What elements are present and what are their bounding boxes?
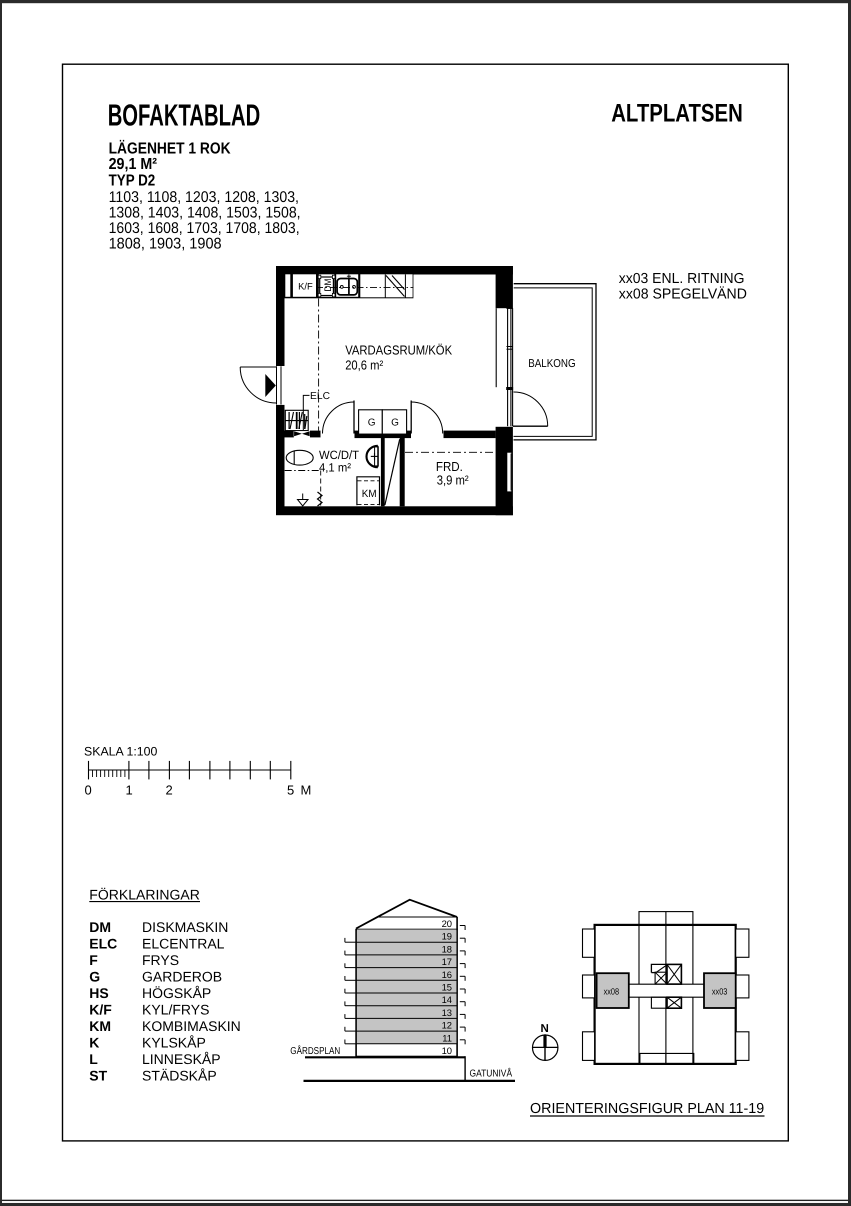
svg-text:xx03: xx03 xyxy=(712,986,728,996)
svg-text:L: L xyxy=(89,1051,98,1067)
svg-text:xx03 ENL. RITNING: xx03 ENL. RITNING xyxy=(619,271,745,287)
svg-text:K: K xyxy=(89,1035,99,1051)
svg-text:5: 5 xyxy=(287,782,294,797)
svg-text:BOFAKTABLAD: BOFAKTABLAD xyxy=(108,99,261,133)
svg-text:M: M xyxy=(301,782,312,797)
svg-text:15: 15 xyxy=(442,982,452,993)
svg-text:xx08: xx08 xyxy=(604,986,620,996)
svg-text:HÖGSKÅP: HÖGSKÅP xyxy=(142,985,211,1001)
svg-text:DM: DM xyxy=(89,919,111,935)
svg-text:GÅRDSPLAN: GÅRDSPLAN xyxy=(290,1045,340,1057)
svg-text:F: F xyxy=(89,952,98,968)
svg-text:HS: HS xyxy=(89,985,108,1001)
svg-text:1808, 1903, 1908: 1808, 1903, 1908 xyxy=(109,235,222,252)
svg-text:ELC: ELC xyxy=(89,936,117,952)
svg-text:29,1 M²: 29,1 M² xyxy=(109,156,157,173)
svg-text:KYL/FRYS: KYL/FRYS xyxy=(142,1002,209,1018)
svg-text:3,9 m²: 3,9 m² xyxy=(437,473,470,488)
svg-text:G: G xyxy=(368,418,376,429)
svg-text:LINNESKÅP: LINNESKÅP xyxy=(142,1051,221,1067)
svg-text:BALKONG: BALKONG xyxy=(528,358,575,370)
svg-text:G: G xyxy=(89,969,100,985)
svg-text:ORIENTERINGSFIGUR PLAN 11-19: ORIENTERINGSFIGUR PLAN 11-19 xyxy=(530,1101,764,1117)
svg-text:12: 12 xyxy=(442,1020,452,1031)
svg-text:2: 2 xyxy=(166,782,173,797)
svg-text:KM: KM xyxy=(362,488,377,500)
svg-text:KOMBIMASKIN: KOMBIMASKIN xyxy=(142,1018,241,1034)
svg-text:DM: DM xyxy=(323,278,334,291)
svg-text:1: 1 xyxy=(126,782,133,797)
svg-text:KM: KM xyxy=(89,1018,111,1034)
svg-text:16: 16 xyxy=(442,969,452,980)
svg-text:20,6 m²: 20,6 m² xyxy=(345,358,384,373)
svg-text:14: 14 xyxy=(442,994,452,1005)
svg-text:4,1 m²: 4,1 m² xyxy=(319,461,351,475)
svg-text:TYP D2: TYP D2 xyxy=(109,173,156,190)
svg-text:xx08 SPEGELVÄND: xx08 SPEGELVÄND xyxy=(619,286,747,303)
svg-text:K/F: K/F xyxy=(298,282,313,293)
svg-text:ELC: ELC xyxy=(310,391,330,402)
svg-text:LÄGENHET 1 ROK: LÄGENHET 1 ROK xyxy=(109,139,231,157)
svg-text:SKALA 1:100: SKALA 1:100 xyxy=(84,745,158,759)
svg-text:19: 19 xyxy=(442,931,452,942)
svg-text:DISKMASKIN: DISKMASKIN xyxy=(142,919,228,935)
svg-text:18: 18 xyxy=(442,943,452,954)
svg-text:N: N xyxy=(541,1023,549,1035)
svg-text:10: 10 xyxy=(442,1045,452,1056)
svg-text:ST: ST xyxy=(89,1068,107,1084)
svg-text:GARDEROB: GARDEROB xyxy=(142,969,222,985)
svg-text:20: 20 xyxy=(442,918,452,929)
svg-text:13: 13 xyxy=(442,1007,452,1018)
svg-text:KYLSKÅP: KYLSKÅP xyxy=(142,1035,206,1051)
svg-text:VARDAGSRUM/KÖK: VARDAGSRUM/KÖK xyxy=(345,343,452,358)
svg-text:FÖRKLARINGAR: FÖRKLARINGAR xyxy=(89,887,200,903)
svg-text:G: G xyxy=(391,418,399,429)
svg-text:11: 11 xyxy=(442,1032,452,1043)
svg-text:ELCENTRAL: ELCENTRAL xyxy=(142,936,225,952)
svg-text:0: 0 xyxy=(85,782,92,797)
svg-text:ALTPLATSEN: ALTPLATSEN xyxy=(611,100,743,128)
svg-text:17: 17 xyxy=(442,956,452,967)
svg-text:GATUNIVÅ: GATUNIVÅ xyxy=(470,1068,513,1080)
svg-text:STÄDSKÅP: STÄDSKÅP xyxy=(142,1068,217,1084)
svg-text:FRYS: FRYS xyxy=(142,952,179,968)
svg-text:K/F: K/F xyxy=(89,1002,112,1018)
